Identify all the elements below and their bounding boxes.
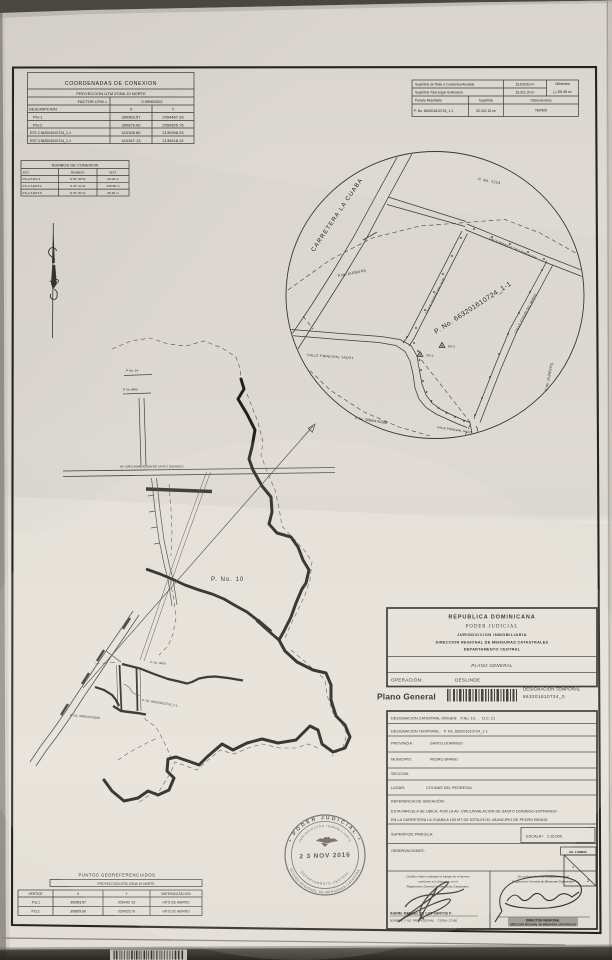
svg-text:DIST.: DIST.	[109, 170, 117, 174]
svg-text:2139398.25: 2139398.25	[162, 130, 184, 135]
svg-text:PG-2: PG-2	[448, 345, 455, 349]
svg-text:390953.57: 390953.57	[70, 901, 86, 905]
svg-text:PG-1 A EST-1: PG-1 A EST-1	[23, 184, 43, 188]
svg-text:S 07°-32' E: S 07°-32' E	[70, 191, 86, 195]
svg-text:410347.13: 410347.13	[122, 138, 142, 143]
svg-text:Superficie Total segun la Mens: Superficie Total segun la Mensura	[415, 91, 463, 95]
svg-text:S 37°-11' E: S 37°-11' E	[70, 184, 85, 188]
svg-text:COORDENADAS DE CONEXION: COORDENADAS DE CONEXION	[65, 81, 157, 87]
svg-text:2054525.76: 2054525.76	[162, 122, 184, 127]
svg-text:PG-2 A PG-1: PG-2 A PG-1	[23, 177, 41, 181]
svg-text:VERTICE: VERTICE	[28, 892, 43, 896]
svg-text:2139418.12: 2139418.12	[162, 138, 184, 143]
svg-text:410328.80: 410328.80	[122, 130, 142, 135]
svg-text:94.03 m: 94.03 m	[107, 177, 119, 181]
svg-text:DESCRIPCION: DESCRIPCION	[29, 107, 57, 112]
svg-text:Observaciones: Observaciones	[530, 99, 552, 103]
svg-text:EST-2 663201610724_1-1: EST-2 663201610724_1-1	[30, 131, 71, 135]
svg-text:P.G.2: P.G.2	[31, 910, 39, 914]
svg-text:P. No 3840: P. No 3840	[123, 388, 138, 392]
svg-text:33,603.83 m²: 33,603.83 m²	[516, 83, 535, 87]
svg-text:PG-1 A EST-6: PG-1 A EST-6	[23, 191, 43, 195]
svg-text:X: X	[130, 107, 133, 112]
svg-text:S 51°-35' E: S 51°-35' E	[70, 177, 86, 181]
svg-text:2054467.33: 2054467.33	[162, 115, 184, 120]
svg-text:Superficie de Titulo o Constan: Superficie de Titulo o Constancia Anotad…	[415, 83, 474, 87]
svg-text:No. LAMINA: No. LAMINA	[569, 850, 587, 854]
svg-text:390879.90: 390879.90	[70, 910, 86, 914]
svg-text:390953.57: 390953.57	[122, 115, 142, 120]
svg-text:33,322.15 m²: 33,322.15 m²	[516, 91, 535, 95]
svg-text:PG-2: PG-2	[33, 122, 43, 127]
svg-text:PROYECCION UTM ZONA 19 NORTE: PROYECCION UTM ZONA 19 NORTE	[76, 91, 146, 96]
svg-text:P. No. 24: P. No. 24	[126, 369, 138, 373]
svg-text:FACTOR UTM =: FACTOR UTM =	[78, 99, 108, 104]
svg-text:(-) 281.68 m²: (-) 281.68 m²	[553, 90, 571, 94]
svg-text:EST-3 663201610724_1-1: EST-3 663201610724_1-1	[30, 139, 71, 143]
svg-text:Superficie: Superficie	[479, 99, 493, 103]
svg-text:PG-1: PG-1	[33, 115, 43, 120]
svg-text:66.46 m: 66.46 m	[107, 191, 119, 195]
svg-text:P. No. 663201610724_1-1: P. No. 663201610724_1-1	[414, 109, 453, 113]
svg-text:130.68 m: 130.68 m	[107, 184, 120, 188]
svg-text:.P.G.1: .P.G.1	[31, 901, 40, 905]
svg-text:RUMBOS DE CONEXION: RUMBOS DE CONEXION	[52, 162, 99, 167]
svg-text:PG-1: PG-1	[427, 354, 434, 358]
svg-text:RUMBOS: RUMBOS	[71, 170, 85, 174]
svg-text:390879.90: 390879.90	[122, 122, 142, 127]
svg-text:Diferencia: Diferencia	[555, 82, 570, 86]
svg-text:Y: Y	[172, 107, 175, 112]
svg-text:Parcela Resultante: Parcela Resultante	[415, 99, 442, 103]
svg-text:EST.: EST.	[23, 170, 30, 174]
svg-text:33,322.15 m²: 33,322.15 m²	[476, 109, 497, 113]
svg-text:YERMO: YERMO	[535, 108, 548, 112]
svg-text:0.99962002: 0.99962002	[141, 99, 163, 104]
